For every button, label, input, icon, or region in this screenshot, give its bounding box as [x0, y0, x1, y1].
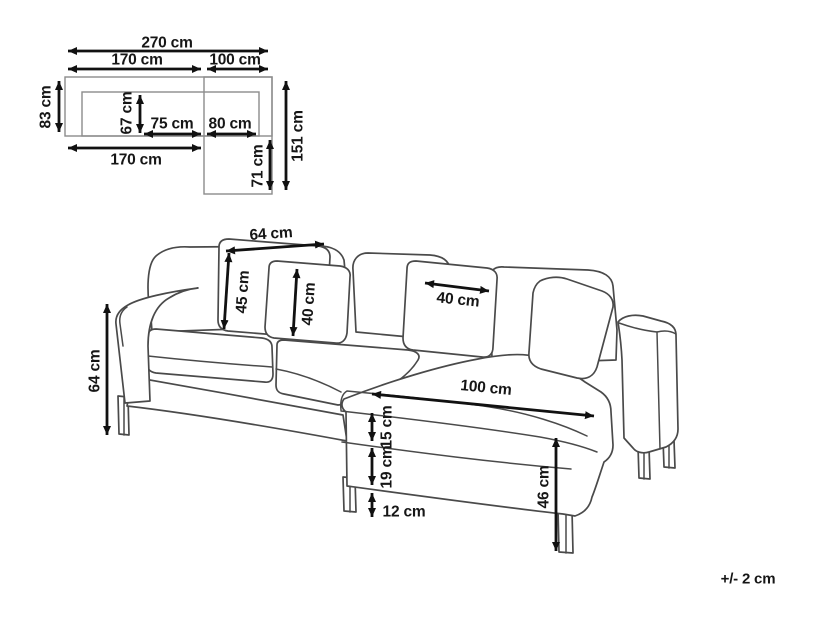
- back-cushion-4: [529, 277, 613, 378]
- plan-bottom-width-label: 170 cm: [110, 152, 161, 169]
- back-cushion-height-label: 45 cm: [233, 270, 253, 314]
- plan-chaise-extension-label: 71 cm: [250, 145, 267, 188]
- sofa-dimension-diagram: 270 cm 170 cm 100 cm 83 cm 67 cm 75 cm 8…: [0, 0, 816, 619]
- leg-height-label: 12 cm: [383, 504, 426, 521]
- plan-right-width-label: 100 cm: [209, 52, 260, 69]
- floor-plan-schematic: 270 cm 170 cm 100 cm 83 cm 67 cm 75 cm 8…: [38, 35, 307, 195]
- tolerance-note: +/- 2 cm: [721, 571, 776, 588]
- back-cushion-3: [403, 261, 497, 357]
- plan-seat-depth-label: 67 cm: [119, 92, 136, 135]
- base-height-label: 19 cm: [379, 446, 396, 489]
- plan-left-width-label: 170 cm: [111, 52, 162, 69]
- diagram-canvas: 270 cm 170 cm 100 cm 83 cm 67 cm 75 cm 8…: [0, 0, 816, 619]
- back-cushion-width-label: 64 cm: [249, 224, 293, 244]
- plan-total-width-label: 270 cm: [141, 35, 192, 52]
- right-armrest: [618, 315, 678, 453]
- seat-height-label: 46 cm: [536, 466, 553, 509]
- plan-right-seat-width-label: 80 cm: [209, 116, 252, 133]
- overall-height-label: 64 cm: [87, 350, 104, 393]
- small-back-cushion-height-label: 40 cm: [299, 282, 319, 326]
- plan-left-seat-width-label: 75 cm: [151, 116, 194, 133]
- plan-depth-label: 83 cm: [38, 86, 55, 129]
- seat-cushion-thickness-label: 15 cm: [379, 406, 396, 449]
- seat-cushion-left: [147, 329, 273, 382]
- plan-chaise-depth-label: 151 cm: [290, 110, 307, 161]
